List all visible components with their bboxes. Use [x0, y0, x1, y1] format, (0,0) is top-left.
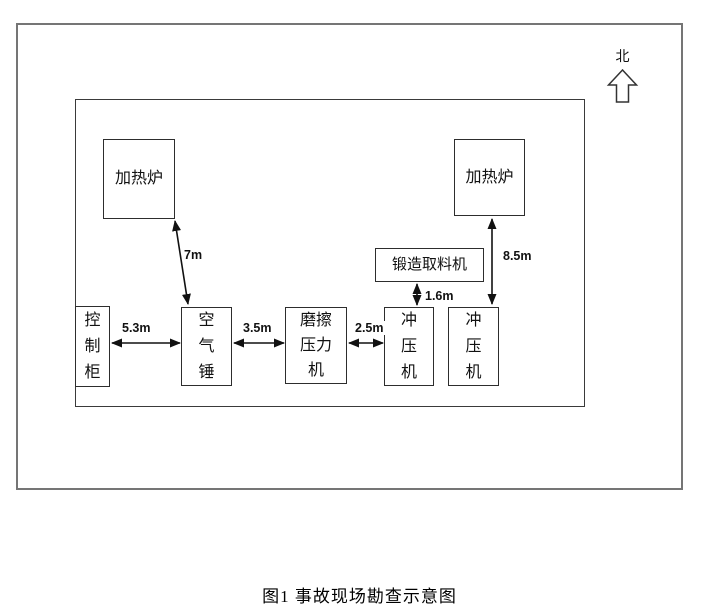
- dimension-label-1-6m: 1.6m: [424, 289, 455, 303]
- control-cabinet: 控制柜: [75, 306, 110, 387]
- dimension-label-2-5m: 2.5m: [354, 321, 385, 335]
- compass: 北: [600, 46, 645, 109]
- air-hammer-label: 空气锤: [197, 308, 215, 386]
- north-arrow-icon: [600, 68, 645, 104]
- punch-press-1-label: 冲压机: [400, 308, 418, 386]
- accident-scene-diagram: 北 加热炉 加热炉 锻造取料机 控制柜 空气锤 磨擦压力机 冲压机 冲压机: [0, 0, 703, 609]
- heating-furnace-right-label: 加热炉: [465, 165, 513, 191]
- forging-reclaimer-label: 锻造取料机: [392, 252, 467, 278]
- forging-reclaimer: 锻造取料机: [375, 248, 484, 282]
- punch-press-2: 冲压机: [448, 307, 499, 386]
- dimension-label-5-3m: 5.3m: [121, 321, 152, 335]
- heating-furnace-left-label: 加热炉: [115, 166, 163, 192]
- punch-press-2-label: 冲压机: [464, 308, 482, 386]
- north-label: 北: [600, 46, 645, 66]
- dimension-label-8-5m: 8.5m: [502, 249, 533, 263]
- friction-press: 磨擦压力机: [285, 307, 347, 384]
- figure-caption: 图1 事故现场勘查示意图: [16, 582, 703, 607]
- dimension-label-7m: 7m: [183, 248, 203, 262]
- heating-furnace-left: 加热炉: [103, 139, 175, 219]
- friction-press-label: 磨擦压力机: [298, 308, 335, 383]
- heating-furnace-right: 加热炉: [454, 139, 525, 216]
- punch-press-1: 冲压机: [384, 307, 434, 386]
- control-cabinet-label: 控制柜: [83, 308, 101, 386]
- dimension-label-3-5m: 3.5m: [242, 321, 273, 335]
- air-hammer: 空气锤: [181, 307, 232, 386]
